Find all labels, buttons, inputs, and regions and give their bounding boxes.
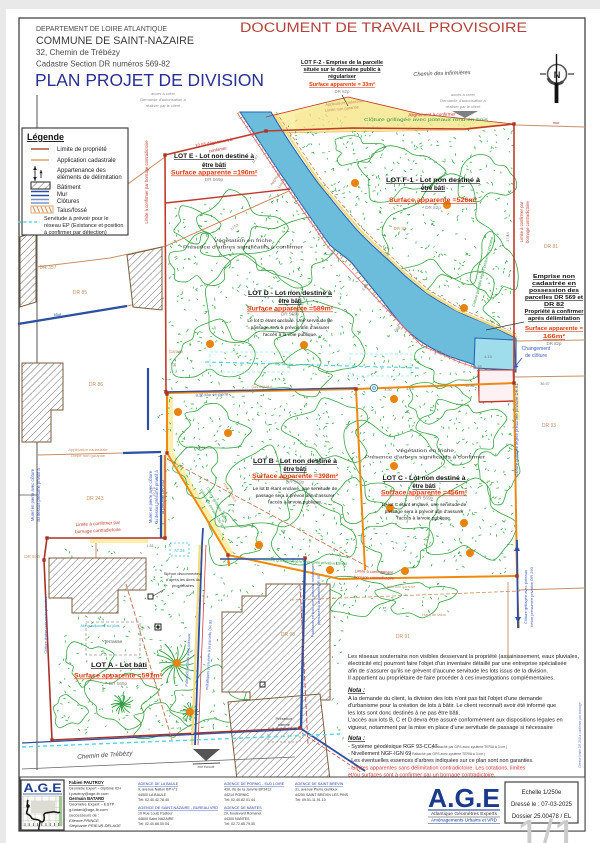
- svg-text:Présence: Présence: [276, 716, 294, 721]
- svg-text:Surface apparente = 33m²: Surface apparente = 33m²: [309, 82, 375, 88]
- svg-text:Limite non garantie: Limite non garantie: [385, 585, 416, 589]
- svg-text:Présence d'arbres significatif: Présence d'arbres significatifs à confir…: [365, 455, 486, 460]
- svg-text:Surface apparente =190m²: Surface apparente =190m²: [171, 170, 257, 177]
- svg-text:Terrasse: Terrasse: [104, 639, 123, 645]
- svg-text:AGENCE DE PORNIC - SUD LOIRE: AGENCE DE PORNIC - SUD LOIRE: [224, 782, 285, 786]
- svg-text:située sur le domaine public à: située sur le domaine public à: [304, 67, 382, 73]
- svg-text:la parcelle DR 243: la parcelle DR 243: [160, 479, 165, 514]
- svg-text:31.13: 31.13: [245, 389, 255, 393]
- svg-text:N°34: N°34: [174, 548, 185, 553]
- svg-text:- Système géodésique RGF 93-CC: - Système géodésique RGF 93-CC47: [348, 744, 438, 750]
- svg-text:Clôture grillagée légère présu: Clôture grillagée légère présumée privat…: [514, 383, 519, 477]
- svg-text:- Limites apparentes sans déli: - Limites apparentes sans délimitation c…: [348, 766, 526, 772]
- svg-text:l'accès à la voie publique.: l'accès à la voie publique.: [263, 332, 318, 338]
- svg-text:COMMUNE DE SAINT-NAZAIRE: COMMUNE DE SAINT-NAZAIRE: [36, 35, 194, 47]
- svg-text:N: N: [554, 70, 561, 81]
- svg-text:AGENCE DE NANTES: AGENCE DE NANTES: [224, 806, 262, 810]
- svg-text:166m²: 166m²: [543, 333, 565, 340]
- svg-text:5.75: 5.75: [198, 446, 205, 450]
- svg-text:être bâti: être bâti: [283, 467, 307, 473]
- svg-text:Demande d'autorisation à: Demande d'autorisation à: [140, 97, 186, 102]
- svg-text:L'accès aux lots B, C et D dev: L'accès aux lots B, C et D devra être as…: [348, 718, 563, 724]
- svg-text:DR 570: DR 570: [24, 554, 40, 559]
- svg-text:A.G.E: A.G.E: [24, 783, 62, 795]
- svg-text:vigueur, notamment par la mise: vigueur, notamment par la mise en place …: [348, 725, 553, 731]
- svg-text:PLAN PROJET DE DIVISION: PLAN PROJET DE DIVISION: [35, 70, 264, 90]
- svg-text:27.14: 27.14: [506, 232, 510, 242]
- svg-text:32, Chemin de Trébézy: 32, Chemin de Trébézy: [36, 48, 120, 57]
- svg-text:Présence d'arbres significatif: Présence d'arbres significatifs à confir…: [183, 245, 304, 250]
- svg-text:57.2: 57.2: [173, 359, 177, 366]
- svg-text:3.50: 3.50: [384, 388, 391, 392]
- svg-text:DR 82: DR 82: [544, 302, 564, 308]
- svg-text:Le lot D étant enclavé. Une se: Le lot D étant enclavé. Une servitude de: [247, 318, 333, 324]
- svg-text:LOT B - Lot non destiné à: LOT B - Lot non destiné à: [253, 459, 338, 465]
- svg-text:être bâti: être bâti: [202, 162, 226, 169]
- svg-text:Propriété à confirmer: Propriété à confirmer: [525, 309, 585, 315]
- svg-text:9, avenue Nation BP n°3: 9, avenue Nation BP n°3: [138, 787, 177, 791]
- svg-text:Limite non garantie: Limite non garantie: [71, 453, 106, 458]
- svg-text:Tél: 02.72.65.79.30: Tél: 02.72.65.79.30: [224, 822, 255, 826]
- svg-text:430, rte de la Janvrie BP1412: 430, rte de la Janvrie BP1412: [224, 787, 271, 791]
- svg-text:29.58: 29.58: [380, 571, 390, 575]
- svg-text:DR 357: DR 357: [40, 265, 57, 271]
- svg-text:Limite à confirmer par bornage: Limite à confirmer par bornage contradic…: [144, 140, 149, 224]
- svg-text:de clôture: de clôture: [525, 353, 547, 359]
- svg-text:à confirmer par détection): à confirmer par détection): [44, 230, 107, 236]
- svg-text:Demande d'autorisation à: Demande d'autorisation à: [440, 98, 486, 103]
- svg-text:Géomètre Expert – Diplômé ICH: Géomètre Expert – Diplômé ICH: [69, 785, 121, 790]
- svg-text:DR 90: DR 90: [281, 632, 295, 638]
- svg-text:du dessus présumé privatif à: du dessus présumé privatif à: [36, 468, 41, 522]
- svg-text:réaliser par le client: réaliser par le client: [146, 103, 182, 108]
- svg-text:électricité etc) pourront fair: électricité etc) pourront faire l'objet …: [348, 661, 567, 667]
- svg-text:Haut de talus: Haut de talus: [422, 612, 446, 617]
- svg-text:bornage contradictoire: bornage contradictoire: [525, 200, 530, 242]
- svg-text:LOT D - Lot non destiné à: LOT D - Lot non destiné à: [248, 291, 333, 297]
- svg-text:Clôture légère présumée privat: Clôture légère présumée privative: [44, 597, 48, 654]
- svg-text:mur écroulé: mur écroulé: [198, 765, 215, 769]
- svg-text:Tél: 02.40.66.00.04: Tél: 02.40.66.00.04: [138, 822, 169, 826]
- svg-text:l'accès à la voie publique.: l'accès à la voie publique.: [268, 500, 323, 506]
- svg-text:Végétation en friche: Végétation en friche: [396, 448, 455, 453]
- svg-text:DOCUMENT DE TRAVAIL PROVISOIRE: DOCUMENT DE TRAVAIL PROVISOIRE: [240, 20, 527, 36]
- svg-text:l'accès à la voie publique.: l'accès à la voie publique.: [397, 516, 452, 522]
- svg-text:Talus/fossé: Talus/fossé: [57, 208, 88, 214]
- svg-text:44300 NANTES: 44300 NANTES: [224, 817, 250, 821]
- svg-text:Tél: 02.40.82.01.44: Tél: 02.40.82.01.44: [224, 798, 255, 802]
- svg-text:d'après les dires du: d'après les dires du: [166, 577, 201, 582]
- svg-text:10.75: 10.75: [152, 487, 156, 497]
- svg-text:Surface apparente =591m²: Surface apparente =591m²: [74, 673, 162, 680]
- svg-text:DR 243: DR 243: [87, 496, 104, 502]
- svg-text:LOT C - Lot non destiné à: LOT C - Lot non destiné à: [383, 476, 467, 482]
- svg-text:régulariser: régulariser: [328, 74, 357, 80]
- svg-text:Application cadastrale: Application cadastrale: [57, 158, 116, 164]
- svg-text:DR 569p: DR 569p: [205, 177, 224, 182]
- svg-text:LOT F-1 - Lot non destiné à: LOT F-1 - Lot non destiné à: [386, 177, 481, 184]
- svg-text:DR 81: DR 81: [544, 244, 558, 250]
- svg-text:A.G.E: A.G.E: [428, 783, 500, 813]
- svg-text:f.pautroy@age-lb.com: f.pautroy@age-lb.com: [69, 791, 109, 796]
- svg-text:Le lot B étant enclavé, une se: Le lot B étant enclavé, une servitude de: [253, 486, 338, 492]
- svg-text:DR 85: DR 85: [73, 290, 87, 296]
- svg-text:20, boulevard Romanet: 20, boulevard Romanet: [224, 811, 261, 815]
- svg-text:Clôture grillagée avec poteaux: Clôture grillagée avec poteaux: [523, 570, 528, 624]
- svg-text:réaliser par le client: réaliser par le client: [446, 104, 482, 109]
- svg-text:accès à créer: accès à créer: [451, 92, 476, 97]
- svg-text:propriétaires: propriétaires: [172, 583, 194, 588]
- svg-text:1/1: 1/1: [516, 811, 577, 843]
- svg-text:Muret en pierre avec clôture: Muret en pierre avec clôture: [30, 468, 35, 521]
- svg-text:afin de s'assurer qu'ils ne gr: afin de s'assurer qu'ils ne grèvent d'au…: [348, 668, 548, 674]
- svg-text:Tél: 09.51.11.91.10: Tél: 09.51.11.91.10: [295, 798, 326, 802]
- svg-text:DR 93: DR 93: [542, 423, 556, 429]
- svg-text:Emprise non: Emprise non: [533, 274, 576, 280]
- svg-text:AGENCE DE SAINT-NAZAIRE - BURE: AGENCE DE SAINT-NAZAIRE - BUREAU VRD: [138, 806, 218, 810]
- svg-text:44600 Saint NAZAIRE: 44600 Saint NAZAIRE: [138, 817, 174, 821]
- svg-text:44250 SAINT BREVIN LES PINS: 44250 SAINT BREVIN LES PINS: [295, 793, 349, 797]
- svg-text:10 Rue Louis Pasteur: 10 Rue Louis Pasteur: [138, 811, 173, 815]
- svg-text:Germain BATARD: Germain BATARD: [69, 796, 104, 801]
- svg-text:Tél: 02.40.42.78.40: Tél: 02.40.42.78.40: [138, 798, 169, 802]
- svg-text:éléments de délimitation: éléments de délimitation: [57, 175, 122, 181]
- svg-text:Siphon disconnecteur: Siphon disconnecteur: [164, 571, 203, 576]
- svg-text:4.19: 4.19: [474, 365, 482, 370]
- svg-text:DR 82p: DR 82p: [335, 89, 350, 94]
- svg-text:Clôtures: Clôtures: [57, 199, 79, 205]
- svg-text:mur: mur: [553, 121, 560, 125]
- svg-text:Changement: Changement: [522, 346, 551, 352]
- svg-text:après délimitation: après délimitation: [528, 316, 580, 322]
- svg-text:Mur: Mur: [57, 192, 67, 198]
- svg-text:AGENCE DE LA BAULE: AGENCE DE LA BAULE: [138, 782, 179, 786]
- svg-text:passage sera à prévoir afin d': passage sera à prévoir afin d'assurer: [256, 493, 335, 499]
- svg-text:Dressé limite DR 290 à confirm: Dressé limite DR 290 à confirmer par bor…: [578, 702, 582, 767]
- svg-text:Aire gravillonnée sur plots: Aire gravillonnée sur plots: [80, 624, 119, 628]
- svg-text:Végétation en friche: Végétation en friche: [214, 238, 273, 243]
- svg-text:DR 569p: DR 569p: [281, 312, 300, 317]
- svg-text:Servitude à prévoir pour le: Servitude à prévoir pour le: [44, 216, 109, 222]
- svg-text:- Les éventuelles essences d'a: - Les éventuelles essences d'arbres indi…: [348, 758, 534, 764]
- svg-text:Echelle 1/250e: Echelle 1/250e: [522, 790, 562, 796]
- svg-text:accès à créer: accès à créer: [151, 91, 176, 96]
- svg-text:DEPARTEMENT DE LOIRE ATLANTIQU: DEPARTEMENT DE LOIRE ATLANTIQUE: [36, 24, 167, 33]
- svg-text:Aménagements Urbains et VRD: Aménagements Urbains et VRD: [431, 818, 497, 823]
- svg-text:Limite de propriété: Limite de propriété: [57, 147, 107, 153]
- svg-text:passage sera à prévoir afin d': passage sera à prévoir afin d'assurer: [251, 325, 330, 331]
- svg-text:Limite à confirmer par: Limite à confirmer par: [519, 201, 524, 242]
- svg-text:Application cadastrale: Application cadastrale: [68, 447, 108, 452]
- svg-text:44214 PORNIC: 44214 PORNIC: [224, 793, 249, 797]
- svg-text:Palissade en bois avec poteaux: Palissade en bois avec poteaux métalliqu…: [311, 563, 315, 637]
- svg-text:Il appartient au propriétaire: Il appartient au propriétaire de faire p…: [348, 676, 555, 682]
- svg-text:AGENCE DE SAINT BREVIN: AGENCE DE SAINT BREVIN: [295, 782, 344, 786]
- svg-text:DR 569p: DR 569p: [415, 496, 434, 501]
- svg-text:être bâti: être bâti: [412, 484, 436, 490]
- svg-text:réseau EP (Existance et positi: réseau EP (Existance et position: [44, 223, 123, 229]
- svg-text:LOT F-2 - Emprise de la parcel: LOT F-2 - Emprise de la parcelle: [301, 60, 383, 66]
- svg-text:parcelles DR 569 et: parcelles DR 569 et: [525, 295, 583, 301]
- svg-text:Les réseaux souterrains non vi: Les réseaux souterrains non visibles des…: [348, 654, 579, 660]
- svg-text:Fabien PAUTROY: Fabien PAUTROY: [69, 780, 104, 785]
- svg-text:A la demande du client, la div: A la demande du client, la division des …: [348, 696, 542, 702]
- svg-text:Stéphanie PRIEUR-DELAGE: Stéphanie PRIEUR-DELAGE: [69, 823, 121, 828]
- svg-text:Appartenance des: Appartenance des: [57, 168, 106, 174]
- svg-text:Légende: Légende: [27, 132, 64, 142]
- svg-text:Cadastre Section DR numéros 56: Cadastre Section DR numéros 569-82: [36, 60, 170, 69]
- svg-text:Dressé le : 07-03-2025: Dressé le : 07-03-2025: [511, 802, 573, 808]
- svg-text:être bâti: être bâti: [278, 299, 302, 305]
- svg-text:Atlantique Géométres Experts: Atlantique Géométres Experts: [431, 811, 497, 816]
- svg-text:DR 91: DR 91: [396, 634, 410, 640]
- svg-text:31, avenue Pierre Guilloux: 31, avenue Pierre Guilloux: [295, 787, 338, 791]
- svg-text:44500 LA BAULE: 44500 LA BAULE: [138, 793, 167, 797]
- svg-text:Nota :: Nota :: [348, 688, 365, 694]
- svg-text:4.19: 4.19: [484, 355, 491, 359]
- svg-text:Géomètre Expert – ESTP: Géomètre Expert – ESTP: [69, 802, 115, 807]
- svg-text:LOT A - Lot bâti: LOT A - Lot bâti: [91, 662, 147, 669]
- svg-text:DR 569p: DR 569p: [109, 681, 128, 686]
- svg-text:Le lot C étant enclavé, une se: Le lot C étant enclavé, une servitude de: [382, 502, 467, 508]
- svg-text:14.82: 14.82: [465, 384, 475, 388]
- svg-text:présumés à la parcelle DR 90: présumés à la parcelle DR 90: [317, 575, 321, 625]
- svg-text:Clôture grillagée avec poteaux: Clôture grillagée avec poteaux rond en b…: [364, 117, 489, 122]
- svg-text:g.batard@age-lb.com: g.batard@age-lb.com: [69, 807, 108, 812]
- svg-text:citerne: citerne: [278, 722, 291, 727]
- svg-text:4.78: 4.78: [406, 387, 413, 391]
- svg-text:successeurs de :: successeurs de :: [69, 812, 99, 817]
- svg-text:d'urbanisme pour la création d: d'urbanisme pour la création de lots à b…: [348, 703, 556, 709]
- svg-text:Bâtiment: Bâtiment: [57, 185, 81, 191]
- svg-text:36.97: 36.97: [540, 382, 550, 386]
- svg-text:béton présumée privative DR 29: béton présumée privative DR 290: [529, 566, 534, 626]
- svg-text:les lots sont donc destinés à: les lots sont donc destinés à ne pas êtr…: [348, 710, 460, 716]
- svg-text:( Rattaché par GPS avec systèm: ( Rattaché par GPS avec système TERIA à …: [410, 752, 485, 756]
- svg-text:passage sera à prévoir afin d': passage sera à prévoir afin d'assurer: [385, 509, 464, 515]
- svg-text:1.81: 1.81: [146, 544, 153, 548]
- svg-text:DR 82p: DR 82p: [425, 205, 441, 210]
- svg-text:être bâti: être bâti: [421, 185, 445, 192]
- svg-text:- Nivellement NGF-IGN 69: - Nivellement NGF-IGN 69: [348, 751, 411, 757]
- svg-text:Surface apparente =: Surface apparente =: [525, 326, 584, 332]
- svg-text:DR 569p: DR 569p: [286, 480, 305, 485]
- svg-text:cadastrée en: cadastrée en: [532, 281, 577, 287]
- svg-text:Surface apparente =526m²: Surface apparente =526m²: [389, 197, 477, 204]
- svg-text:LOT E - Lot non destiné à: LOT E - Lot non destiné à: [174, 153, 255, 160]
- svg-text:Nota :: Nota :: [348, 736, 365, 742]
- svg-text:DR 86: DR 86: [89, 382, 103, 388]
- svg-text:( Rattaché par GPS avec systèm: ( Rattaché par GPS avec système TERIA à …: [432, 745, 507, 749]
- svg-text:possession des: possession des: [529, 288, 579, 294]
